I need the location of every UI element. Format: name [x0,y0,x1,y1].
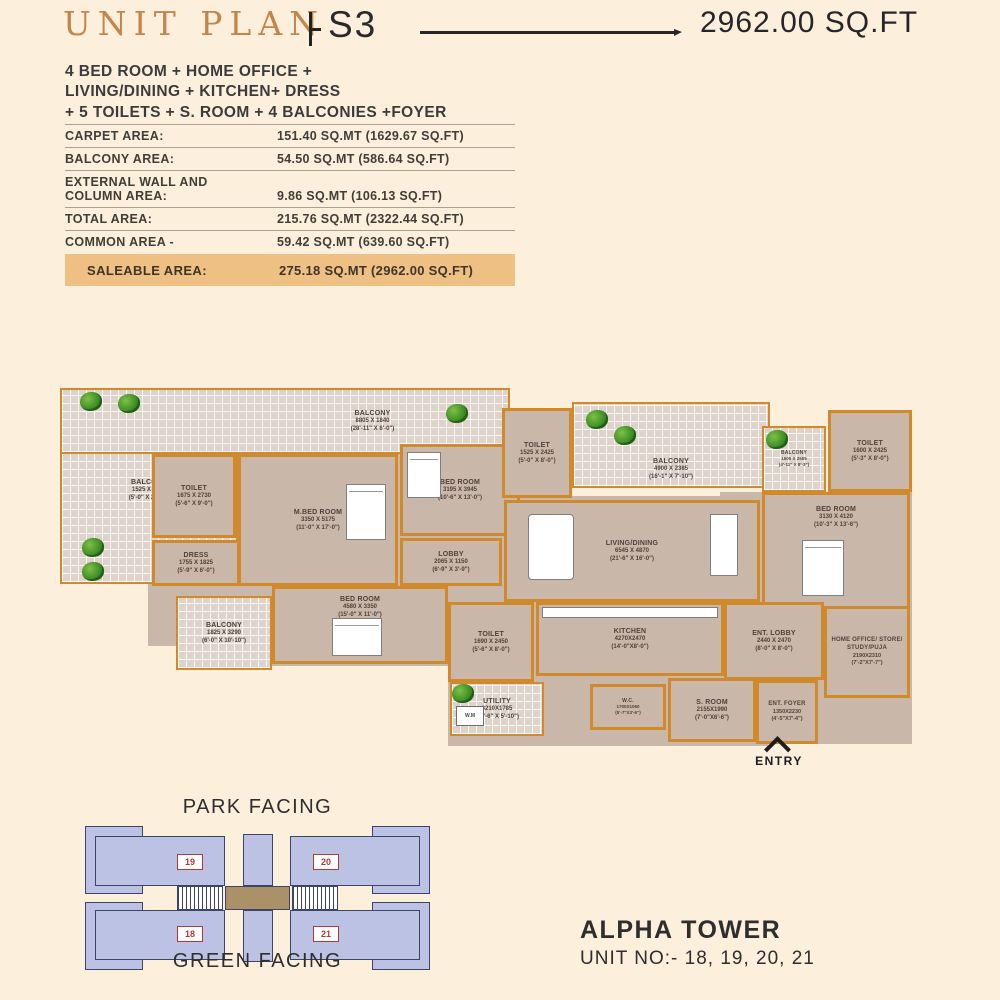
keyplan-wing [290,836,420,886]
room-label: BED ROOM [440,478,480,487]
row-label: EXTERNAL WALL AND COLUMN AREA: [65,175,277,203]
room-label: S. ROOM [696,698,728,707]
floor-plan: BALCONY 1525 X 7340 (5'-0" X 24'-1") BAL… [60,388,918,766]
room-dim-mm: 1755 X 1825 [179,560,213,568]
room-dim-mm: 4270X2470 [615,636,646,644]
room-toilet-4: TOILET 1690 X 2450 (5'-6" X 8'-0") [448,602,534,682]
page-title: UNIT PLAN [63,4,325,43]
room-wc: W.C. 1700X1060 (5'-7"X3'-6") [590,684,666,730]
room-dim-mm: 2440 X 2470 [757,638,791,646]
room-dim-mm: 1675 X 2730 [177,493,211,501]
room-dim-ft: (16'-1" X 7'-10") [649,474,693,482]
room-dim-mm: 3130 X 4120 [819,514,853,522]
unit-plan-page: UNIT PLAN S3 2962.00 SQ.FT 4 BED ROOM + … [0,0,1000,1000]
room-dim-mm: 1600 X 2425 [853,448,887,456]
room-label: HOME OFFICE/ STORE/ STUDY/PUJA [829,637,905,653]
keyplan-stairs-left [177,886,223,910]
row-value: 54.50 SQ.MT (586.64 SQ.FT) [277,152,515,166]
room-label: TOILET [857,439,883,448]
room-dim-ft: (5'-7"X3'-6") [615,710,640,716]
room-dim-ft: (5'-6" X 8'-0") [472,647,509,655]
area-table: CARPET AREA: 151.40 SQ.MT (1629.67 SQ.FT… [65,124,515,253]
washing-machine: W.M [456,706,484,726]
room-dim-ft: (5'-9" X 6'-0") [177,568,214,576]
room-label: TOILET [524,441,550,450]
tree-icon [118,394,140,413]
keyplan-wing [95,836,225,886]
room-label: LIVING/DINING [606,539,658,548]
room-label: BALCONY [354,409,390,418]
table-row: EXTERNAL WALL AND COLUMN AREA: 9.86 SQ.M… [65,170,515,207]
description-line: 4 BED ROOM + HOME OFFICE + [65,62,535,82]
room-balcony-bottom: BALCONY 1825 X 3290 (6'-0" X 10'-10") [176,596,272,670]
room-servant: S. ROOM 2155X1990 (7'-0"X6'-6") [668,678,756,742]
room-dim-mm: 1525 X 2425 [520,450,554,458]
room-dim-mm: 4580 X 3350 [343,604,377,612]
saleable-label: SALEABLE AREA: [65,263,279,278]
header-rule [420,31,675,34]
room-label: ENT. LOBBY [752,629,796,638]
room-dim-ft: (7'-2"X7'-7") [851,660,882,667]
room-dim-mm: 3195 X 3945 [443,487,477,495]
room-toilet-2: TOILET 1525 X 2425 (5'-0" X 8'-0") [502,408,572,498]
room-dim-mm: 1690 X 2450 [474,639,508,647]
room-dim-ft: (5'-6" X 9'-0") [175,501,212,509]
saleable-value: 275.18 SQ.MT (2962.00 SQ.FT) [279,263,515,278]
keyplan-core-top [243,834,273,886]
description-line: LIVING/DINING + KITCHEN+ DRESS [65,82,535,102]
tree-icon [82,562,104,581]
room-label: BED ROOM [340,595,380,604]
tree-icon [80,392,102,411]
room-label: BED ROOM [816,505,856,514]
saleable-area-row: SALEABLE AREA: 275.18 SQ.MT (2962.00 SQ.… [65,254,515,286]
unit-number-18: 18 [177,926,203,942]
room-dim-mm: 3350 X 5175 [301,517,335,525]
room-dim-ft: (6'-0" X 10'-10") [202,638,246,646]
room-dress: DRESS 1755 X 1825 (5'-9" X 6'-0") [152,540,240,586]
bed [407,452,441,498]
row-label: BALCONY AREA: [65,152,277,166]
room-dim-mm: 2190X2310 [853,653,881,660]
room-label: KITCHEN [614,627,647,636]
row-value: 9.86 SQ.MT (106.13 SQ.FT) [277,189,515,203]
tower-unit-numbers: UNIT NO:- 18, 19, 20, 21 [580,948,815,970]
row-label: COMMON AREA - [65,235,277,249]
room-dim-ft: (21'-6" X 16'-0") [610,556,654,564]
sofa [710,514,738,576]
table-row: CARPET AREA: 151.40 SQ.MT (1629.67 SQ.FT… [65,124,515,147]
room-dim-mm: 1825 X 3290 [207,630,241,638]
tree-icon [82,538,104,557]
header-area-value: 2962.00 SQ.FT [700,6,918,40]
dining-table [528,514,574,580]
room-label: TOILET [478,630,504,639]
table-row: BALCONY AREA: 54.50 SQ.MT (586.64 SQ.FT) [65,147,515,170]
room-dim-mm: 2155X1990 [697,707,728,715]
row-label: CARPET AREA: [65,129,277,143]
entry-label: ENTRY [744,754,814,768]
keyplan-lift-core [225,886,290,910]
room-entrance-lobby: ENT. LOBBY 2440 X 2470 (8'-0" X 8'-0") [724,602,824,680]
room-dim-ft: (28'-11" X 6'-0") [351,426,395,434]
table-row: TOTAL AREA: 215.76 SQ.MT (2322.44 SQ.FT) [65,207,515,230]
room-dim-ft: (14'-0"X8'-0") [611,644,648,652]
room-label: M.BED ROOM [294,508,342,517]
room-dim-ft: (11'-0" X 17'-0") [296,525,340,533]
tower-name: ALPHA TOWER [580,916,781,945]
title-divider [309,12,312,46]
unit-description: 4 BED ROOM + HOME OFFICE + LIVING/DINING… [65,62,535,123]
room-dim-mm: 6545 X 4870 [615,548,649,556]
row-value: 59.42 SQ.MT (639.60 SQ.FT) [277,235,515,249]
tree-icon [614,426,636,445]
room-toilet-3: TOILET 1600 X 2425 (5'-3" X 8'-0") [828,410,912,492]
unit-number-19: 19 [177,854,203,870]
unit-code: S3 [328,4,377,46]
room-dim-ft: (10'-3" X 13'-6") [814,522,858,530]
keyplan-stairs-right [292,886,338,910]
row-value: 151.40 SQ.MT (1629.67 SQ.FT) [277,129,515,143]
room-dim-ft: (5'-0" X 8'-0") [518,458,555,466]
tree-icon [766,430,788,449]
room-dim-mm: 1350X2230 [773,709,801,716]
bed [332,618,382,656]
room-dim-mm: 4900 X 2385 [654,466,688,474]
room-toilet-mbed: TOILET 1675 X 2730 (5'-6" X 9'-0") [152,454,236,538]
row-value: 215.76 SQ.MT (2322.44 SQ.FT) [277,212,515,226]
room-dim-mm: 8805 X 1840 [355,418,389,426]
bed [346,484,386,540]
room-dim-ft: (10'-6" X 13'-0") [438,495,482,503]
bed [802,540,844,596]
room-label: UTILITY [483,697,511,706]
unit-number-21: 21 [313,926,339,942]
row-label: TOTAL AREA: [65,212,277,226]
green-facing-label: GREEN FACING [85,950,430,973]
room-lobby: LOBBY 2065 X 1150 (6'-9" X 3'-9") [400,538,502,586]
description-line: + 5 TOILETS + S. ROOM + 4 BALCONIES +FOY… [65,103,535,123]
room-label: DRESS [183,551,208,560]
park-facing-label: PARK FACING [85,796,430,819]
room-label: TOILET [181,484,207,493]
room-dim-ft: (4'-5"X7'-4") [771,716,802,723]
room-dim-ft: (7'-0"X6'-6") [695,715,729,723]
room-dim-mm: 2065 X 1150 [434,559,468,567]
room-dim-ft: (8'-0" X 8'-0") [755,646,792,654]
tree-icon [586,410,608,429]
room-label: BALCONY [653,457,689,466]
room-dim-ft: (5'-3" X 8'-0") [851,456,888,464]
room-dim-mm: 3210X1785 [482,706,513,714]
room-home-office: HOME OFFICE/ STORE/ STUDY/PUJA 2190X2310… [824,606,910,698]
tree-icon [446,404,468,423]
kitchen-counter [542,607,718,618]
room-label: LOBBY [438,550,464,559]
room-label: BALCONY [206,621,242,630]
room-dim-ft: (6'-9" X 3'-9") [432,567,469,575]
room-label: ENT. FOYER [768,701,805,709]
table-row: COMMON AREA - 59.42 SQ.MT (639.60 SQ.FT) [65,230,515,253]
tree-icon [452,684,474,703]
unit-number-20: 20 [313,854,339,870]
room-entrance-foyer: ENT. FOYER 1350X2230 (4'-5"X7'-4") [756,680,818,744]
room-dim-ft: (4'-11" X 8'-3") [779,462,809,468]
